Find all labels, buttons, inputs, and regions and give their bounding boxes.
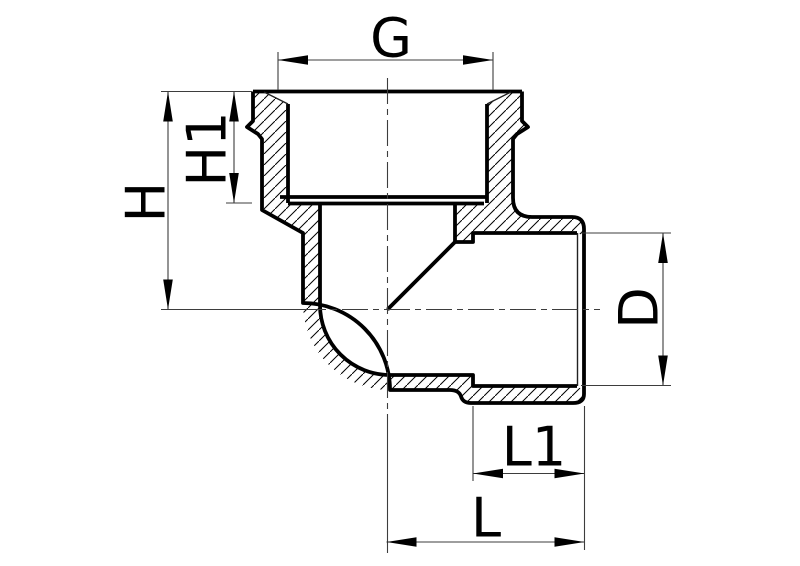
h-dimension-label: H — [115, 182, 178, 223]
drawing-background — [0, 0, 800, 566]
d-dimension-label: D — [608, 287, 671, 329]
l1-dimension-label: L1 — [502, 416, 566, 479]
l-dimension-label: L — [471, 487, 501, 550]
elbow-fitting-drawing: G H1 H D L1 L — [0, 0, 800, 566]
g-dimension-label: G — [370, 7, 412, 70]
h1-dimension-label: H1 — [176, 112, 239, 187]
